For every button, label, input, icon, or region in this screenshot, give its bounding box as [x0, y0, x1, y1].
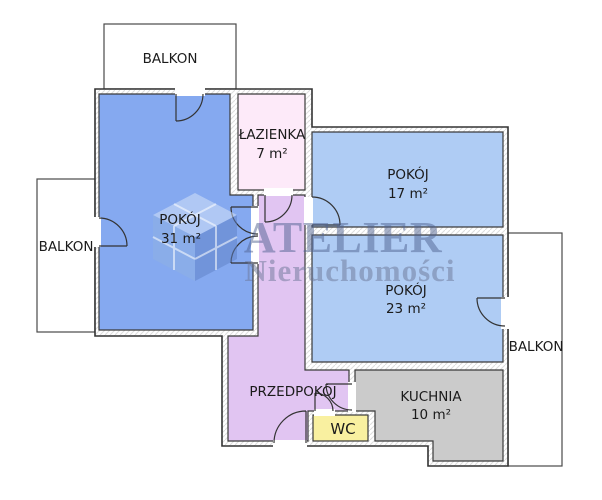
opening-lazienka-door: [264, 188, 293, 196]
opening-pokoj23-balcony-door: [501, 297, 509, 329]
label-wc: WC: [330, 420, 355, 438]
opening-balcony-left-door: [93, 217, 101, 247]
label-pokoj23: POKÓJ: [385, 281, 427, 299]
label-kuchnia-area: 10 m²: [411, 407, 451, 423]
label-lazienka: ŁAZIENKA: [238, 127, 306, 143]
balcony-left: [37, 179, 95, 332]
label-kuchnia: KUCHNIA: [400, 389, 462, 405]
floorplan-svg: ATELIER Nieruchomości BALKON BALKON BALK…: [0, 0, 602, 500]
floorplan-page: ATELIER Nieruchomości BALKON BALKON BALK…: [0, 0, 602, 500]
label-balkon-right: BALKON: [509, 339, 564, 355]
label-pokoj23-area: 23 m²: [386, 301, 426, 317]
opening-balcony-top-door: [175, 88, 205, 96]
label-balkon-left: BALKON: [39, 239, 94, 255]
label-przedpokoj: PRZEDPOKÓJ: [249, 382, 336, 400]
label-pokoj17-area: 17 m²: [388, 186, 428, 202]
opening-kuchnia-door: [348, 382, 356, 412]
opening-entrance-door: [273, 440, 307, 447]
label-pokoj17: POKÓJ: [387, 165, 429, 183]
opening-wc-door: [314, 409, 335, 416]
label-pokoj31-area: 31 m²: [161, 231, 201, 247]
label-lazienka-area: 7 m²: [256, 146, 287, 162]
label-balkon-top: BALKON: [143, 51, 198, 67]
label-pokoj31: POKÓJ: [159, 210, 201, 228]
